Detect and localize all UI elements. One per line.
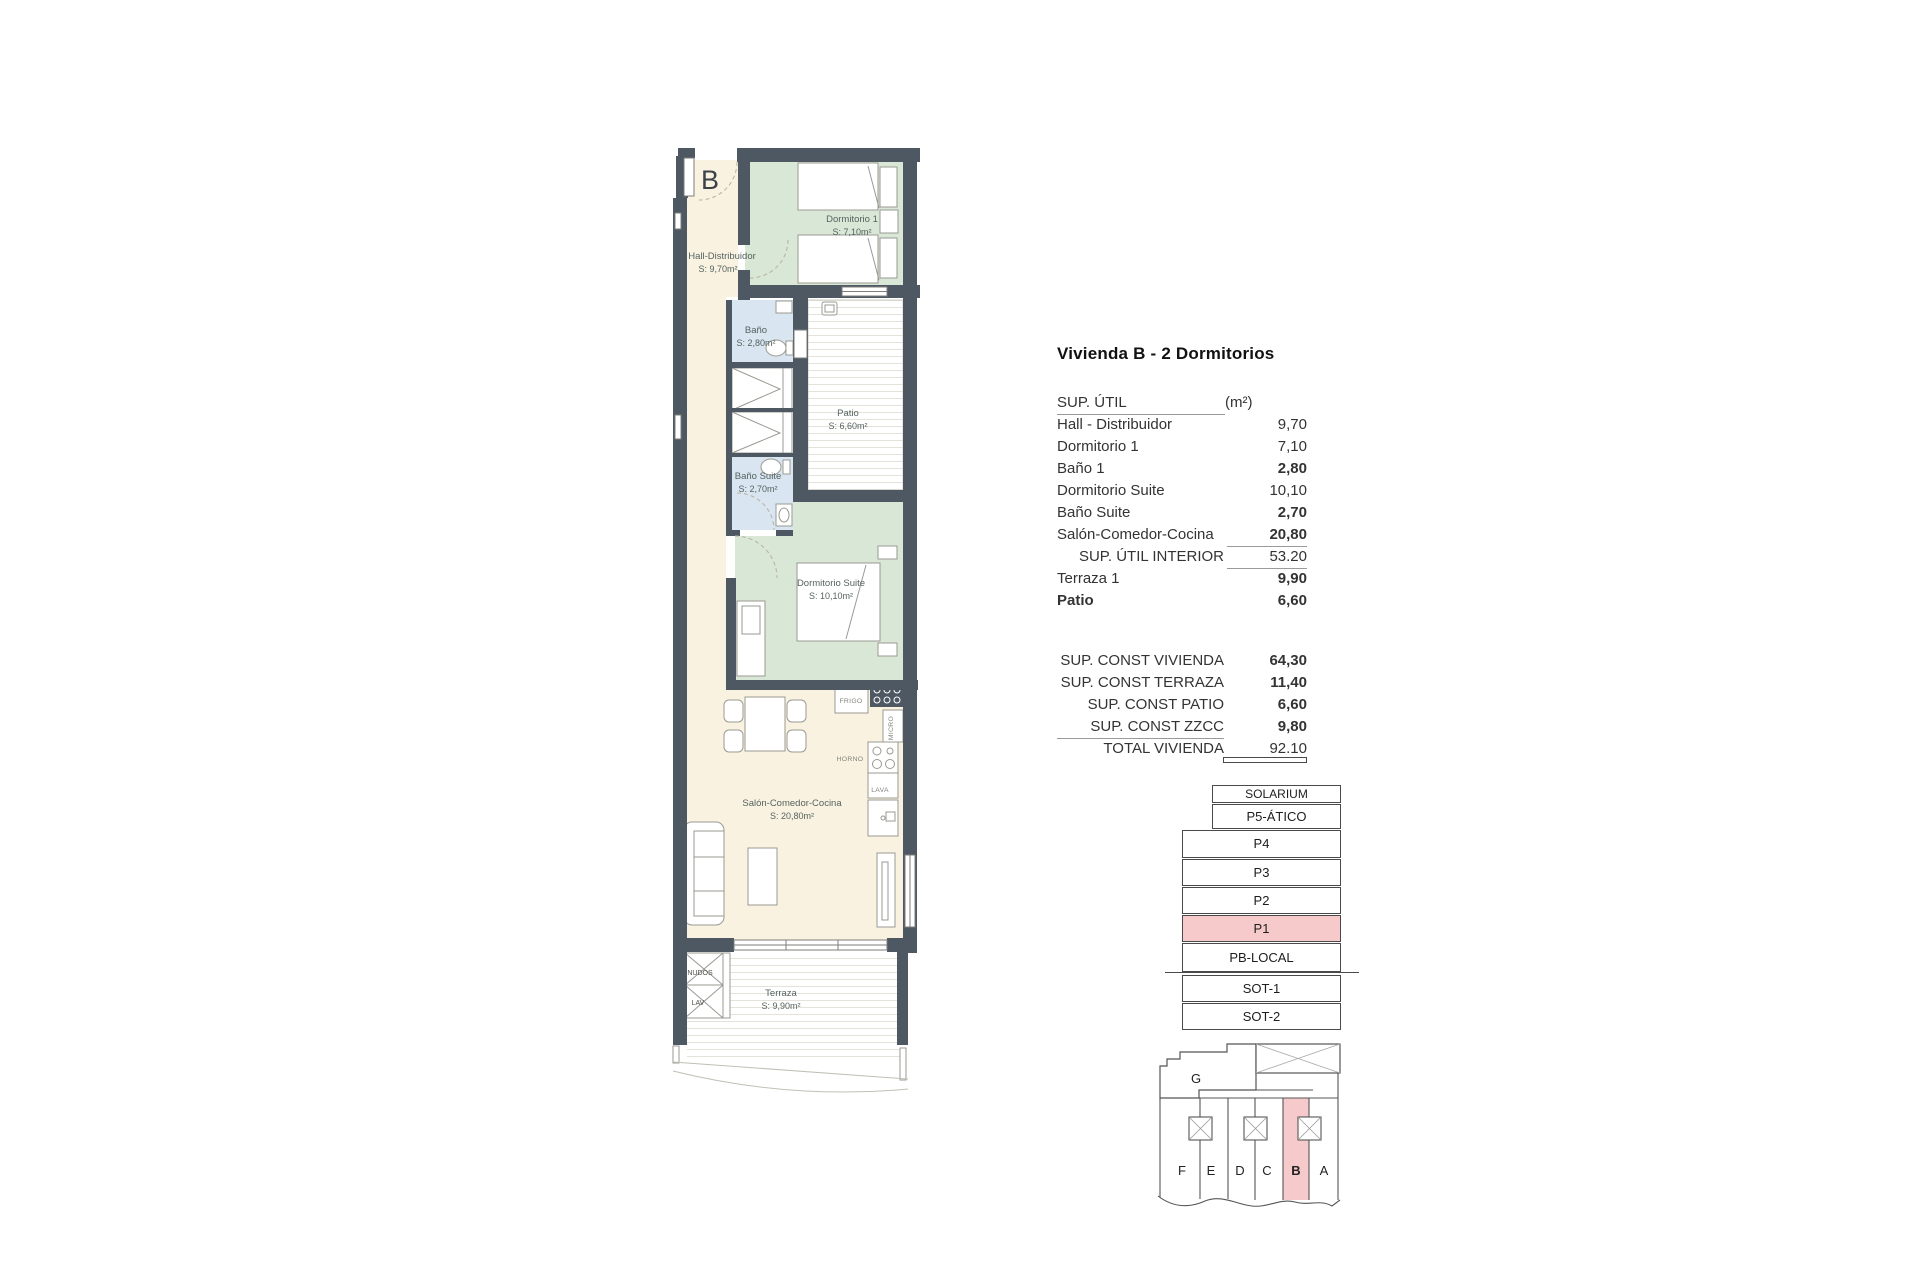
table-row: SUP. CONST TERRAZA 11,40 (1057, 672, 1307, 694)
table-row: SUP. CONST PATIO 6,60 (1057, 694, 1307, 716)
divider (1227, 546, 1307, 547)
table-row: Baño Suite 2,70 (1057, 502, 1307, 524)
patio-floor (808, 300, 903, 490)
appliance-label: FRIGO (839, 698, 862, 705)
pillow-icon (880, 167, 897, 207)
level-sot2: SOT-2 (1182, 1003, 1341, 1030)
level-solarium: SOLARIUM (1212, 785, 1341, 803)
level-p1-highlighted: P1 (1182, 915, 1341, 942)
key-plan: G F E D C B A (1148, 1040, 1373, 1225)
unit-letter-d: D (1235, 1163, 1244, 1178)
utility-label: NUDOS (687, 970, 713, 977)
unit-letter-a: A (1320, 1163, 1329, 1178)
divider (1057, 414, 1225, 415)
elevator-core-icon (1189, 1117, 1321, 1140)
roof-bulkhead (1223, 757, 1307, 763)
divider (1227, 568, 1307, 569)
table-row: Hall - Distribuidor 9,70 (1057, 414, 1307, 436)
room-area: S: 6,60m² (828, 421, 867, 431)
ground-line (1165, 972, 1359, 973)
level-p4: P4 (1182, 830, 1341, 858)
unit-letter-f: F (1178, 1163, 1186, 1178)
level-p3: P3 (1182, 859, 1341, 886)
room-label: Terraza (765, 988, 797, 999)
bed-icon (798, 235, 878, 283)
break-edge-mask (1158, 1196, 1340, 1224)
room-area: S: 20,80m² (770, 811, 814, 821)
break-lines (673, 1062, 908, 1092)
unit-letter-b: B (1291, 1163, 1300, 1178)
unit-g-outline (1160, 1044, 1256, 1098)
page-title: Vivienda B - 2 Dormitorios (1057, 344, 1274, 364)
nightstand-icon (878, 643, 897, 656)
room-label: Baño Suite (735, 471, 781, 482)
chair-icon (724, 730, 743, 752)
utility-closet-icon (685, 953, 730, 1018)
room-area: S: 2,70m² (738, 484, 777, 494)
nightstand-icon (878, 546, 897, 559)
unit-letter-c: C (1262, 1163, 1271, 1178)
unit-header: (m²) (1225, 392, 1252, 414)
table-header: SUP. ÚTIL (m²) (1057, 392, 1307, 414)
unit-letter: B (701, 165, 719, 195)
table-row: Patio 6,60 (1057, 590, 1307, 612)
balustrade-post (673, 1046, 679, 1063)
sup-util-table: SUP. ÚTIL (m²) Hall - Distribuidor 9,70 … (1057, 392, 1307, 612)
floor-level-stack: SOLARIUM P5-ÁTICO P4 P3 P2 P1 PB-LOCAL S… (1182, 755, 1341, 1033)
washbasin-icon (776, 301, 792, 313)
subtotal-row: SUP. ÚTIL INTERIOR 53.20 (1057, 546, 1307, 568)
table-row: Dormitorio Suite 10,10 (1057, 480, 1307, 502)
table-row: Terraza 1 9,90 (1057, 568, 1307, 590)
sup-const-table: SUP. CONST VIVIENDA 64,30 SUP. CONST TER… (1057, 650, 1307, 760)
bed-icon (797, 563, 880, 641)
room-area: S: 10,10m² (809, 591, 853, 601)
utility-label: LAV (692, 1000, 705, 1007)
bed-icon (798, 163, 878, 210)
table-row: SUP. CONST VIVIENDA 64,30 (1057, 650, 1307, 672)
appliance-label: HORNO (837, 756, 864, 763)
table-row: Salón-Comedor-Cocina 20,80 (1057, 524, 1307, 546)
level-pb-local: PB-LOCAL (1182, 943, 1341, 972)
chair-icon (787, 700, 806, 722)
patio-door (794, 330, 807, 358)
table-row: Baño 1 2,80 (1057, 458, 1307, 480)
level-sot1: SOT-1 (1182, 975, 1341, 1002)
unit-b-highlight (1284, 1098, 1310, 1200)
dining-table-icon (745, 697, 785, 751)
pillow-icon (880, 238, 897, 278)
room-area: S: 9,70m² (698, 264, 737, 274)
balustrade-post (900, 1048, 906, 1080)
room-area: S: 9,90m² (761, 1001, 800, 1011)
table-row: Dormitorio 1 7,10 (1057, 436, 1307, 458)
plan-sheet: B Hall-Distribuidor S: 9,70m² Dormitorio… (0, 0, 1920, 1280)
crossed-area (1256, 1044, 1340, 1073)
room-label: Hall-Distribuidor (688, 251, 756, 262)
window (675, 213, 681, 229)
level-p5-atico: P5-ÁTICO (1212, 804, 1341, 829)
sup-util-header: SUP. ÚTIL (1057, 392, 1127, 414)
appliance-label: LAVA (871, 787, 889, 794)
room-label: Dormitorio 1 (826, 214, 878, 225)
room-label: Dormitorio Suite (797, 578, 865, 589)
coffee-table-icon (748, 848, 777, 905)
chair-icon (724, 700, 743, 722)
nightstand-icon (880, 210, 898, 233)
room-label: Baño (745, 325, 767, 336)
level-p2: P2 (1182, 887, 1341, 914)
room-area: S: 7,10m² (832, 227, 871, 237)
window (675, 415, 681, 439)
dishwasher-icon (868, 773, 898, 798)
room-area: S: 2,80m² (736, 338, 775, 348)
floor-plan: B Hall-Distribuidor S: 9,70m² Dormitorio… (650, 130, 940, 1110)
chair-icon (787, 730, 806, 752)
oven-icon (868, 742, 898, 773)
entry-door-leaf (684, 158, 694, 196)
table-row: SUP. CONST ZZCC 9,80 (1057, 716, 1307, 738)
appliance-label: MICRO (888, 716, 895, 740)
divider (1057, 738, 1224, 739)
room-label: Patio (837, 408, 859, 419)
roof-unit-label: G (1191, 1071, 1201, 1086)
room-label: Salón-Comedor-Cocina (742, 798, 842, 809)
unit-letter-e: E (1207, 1163, 1216, 1178)
